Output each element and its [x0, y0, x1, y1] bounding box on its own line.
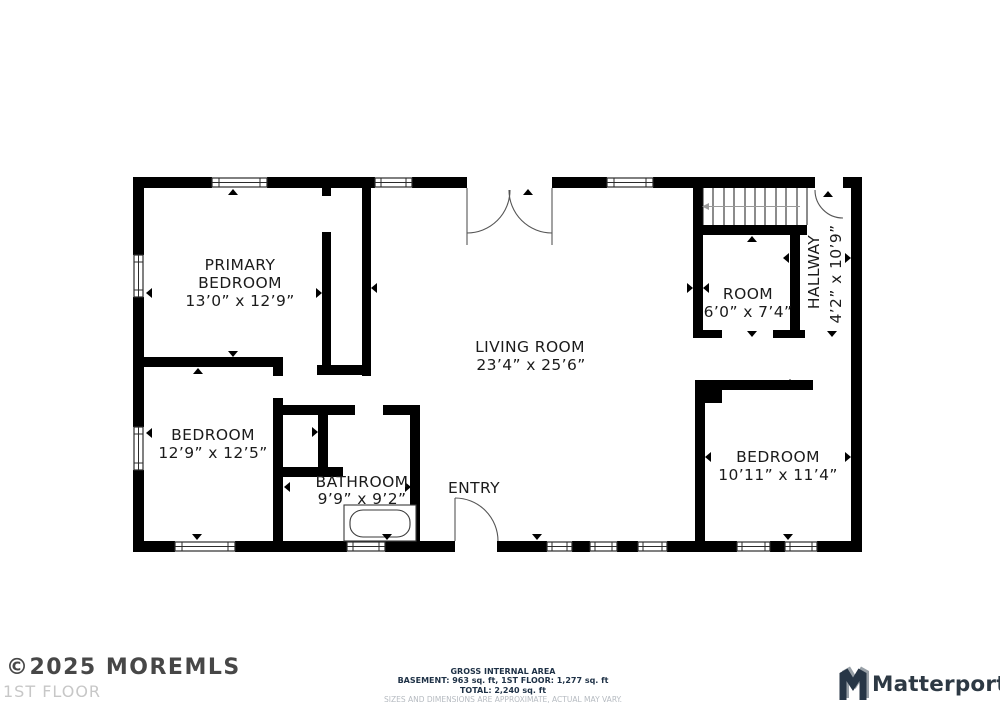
- window-icon: [547, 542, 572, 551]
- window-icon: [347, 542, 385, 551]
- hallway-dims: 4’2” x 10’9”: [827, 224, 845, 323]
- room-dims: 6’0” x 7’4”: [704, 303, 793, 321]
- window-icon: [590, 542, 617, 551]
- disclaimer-text: SIZES AND DIMENSIONS ARE APPROXIMATE, AC…: [303, 695, 703, 704]
- gross-internal-area-block: GROSS INTERNAL AREA BASEMENT: 963 sq. ft…: [303, 667, 703, 705]
- window-icon: [638, 542, 667, 551]
- window-icon: [737, 542, 770, 551]
- bedroom-right-dims: 10’11” x 11’4”: [718, 466, 838, 484]
- french-door-icon: [467, 188, 552, 245]
- window-icon: [785, 542, 817, 551]
- primary-bedroom-label-line2: BEDROOM: [198, 274, 282, 292]
- living-room-label: LIVING ROOM: [475, 338, 585, 356]
- bathroom-dims: 9’9” x 9’2”: [318, 490, 407, 508]
- primary-bedroom-label-line1: PRIMARY: [205, 256, 276, 274]
- bedroom-right-label: BEDROOM: [736, 448, 820, 466]
- entry-label: ENTRY: [448, 479, 500, 497]
- window-icon: [134, 255, 143, 297]
- room-label: ROOM: [723, 285, 773, 303]
- window-icon: [175, 542, 235, 551]
- copyright-text: ©2025 MOREMLS: [6, 655, 241, 680]
- hallway-label: HALLWAY: [805, 235, 823, 309]
- entry-door-icon: [455, 498, 498, 541]
- floorplan-page: PRIMARY BEDROOM 13’0” x 12’9” BEDROOM 12…: [0, 0, 1000, 707]
- bathroom-label: BATHROOM: [316, 473, 409, 491]
- staircase: [702, 188, 807, 225]
- living-room-dims: 23’4” x 25’6”: [476, 356, 585, 374]
- floorplan-drawing: PRIMARY BEDROOM 13’0” x 12’9” BEDROOM 12…: [0, 0, 1000, 707]
- window-icon: [134, 427, 143, 470]
- bathtub-icon: [344, 505, 416, 541]
- window-icon: [607, 178, 653, 187]
- bedroom-left-dims: 12’9” x 12’5”: [158, 444, 267, 462]
- gross-area-total: TOTAL: 2,240 sq. ft: [303, 686, 703, 695]
- floor-label: 1ST FLOOR: [3, 682, 101, 701]
- matterport-logo: Matterport: [838, 664, 998, 704]
- gross-area-title: GROSS INTERNAL AREA: [303, 667, 703, 676]
- bedroom-left-label: BEDROOM: [171, 426, 255, 444]
- matterport-wordmark: Matterport: [872, 672, 1000, 697]
- window-icon: [375, 178, 412, 187]
- window-icon: [212, 178, 267, 187]
- gross-area-line: BASEMENT: 963 sq. ft, 1ST FLOOR: 1,277 s…: [303, 676, 703, 685]
- matterport-m-icon: [838, 666, 872, 702]
- primary-bedroom-dims: 13’0” x 12’9”: [185, 292, 294, 310]
